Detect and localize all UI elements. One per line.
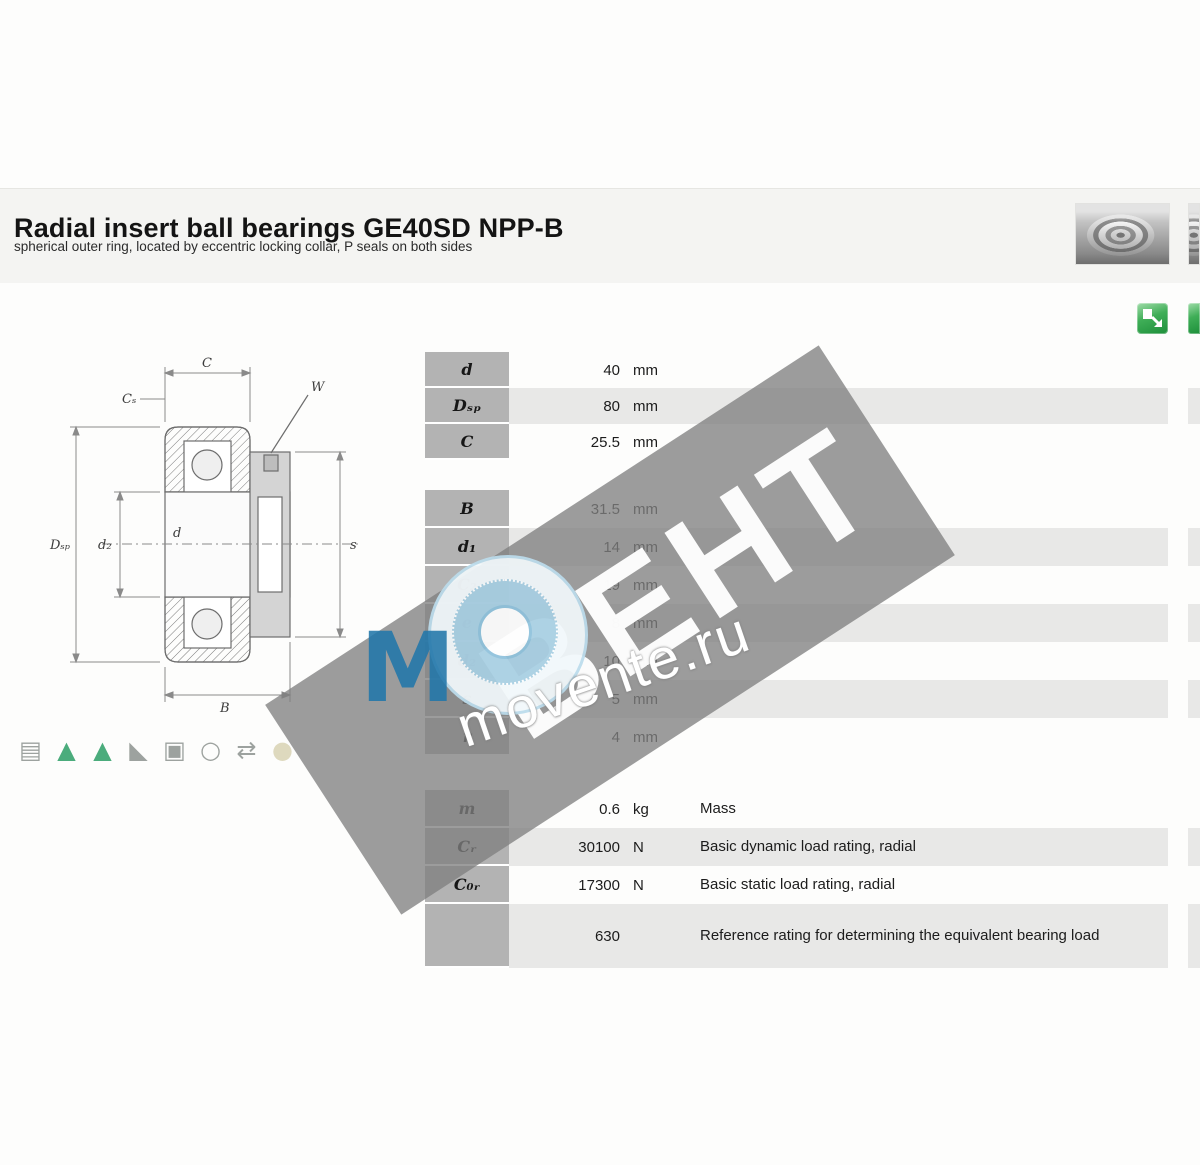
- spec-symbol: [425, 904, 509, 968]
- watermark-m-logo: M: [360, 612, 456, 724]
- spec-row: C₀ᵣ17300NBasic static load rating, radia…: [425, 866, 1168, 904]
- spec-unit: kg: [620, 801, 700, 818]
- spec-value: 630: [509, 928, 620, 945]
- spec-description: Basic static load rating, radial: [700, 873, 1130, 896]
- spec-unit: mm: [620, 398, 700, 415]
- drawing-label-d2: d₂: [98, 538, 112, 553]
- spec-value: 25.5: [509, 434, 620, 451]
- product-page: Radial insert ball bearings GE40SD NPP-B…: [0, 0, 1200, 1165]
- spec-value: 17300: [509, 877, 620, 894]
- seal-icon: ▣: [160, 732, 189, 768]
- header-band: Radial insert ball bearings GE40SD NPP-B…: [0, 188, 1200, 283]
- drawing-label-dsp: Dₛₚ: [49, 538, 70, 553]
- next-column-stripe: [1188, 904, 1200, 968]
- spec-unit: N: [620, 877, 700, 894]
- spec-description: Basic dynamic load rating, radial: [700, 835, 1130, 858]
- drawing-label-b: B: [219, 701, 230, 716]
- next-column-stripe: [1188, 828, 1200, 866]
- next-column-stripe: [1188, 604, 1200, 642]
- datasheet-icon: ▤: [16, 732, 45, 768]
- watermark-logo-bore: [478, 605, 532, 659]
- spec-description: Reference rating for determining the equ…: [700, 924, 1130, 947]
- drawing-label-d: d: [173, 526, 181, 541]
- cad-arrow-glyph: [1137, 303, 1168, 334]
- spec-value: 40: [509, 362, 620, 379]
- feature-icon-row: ▤▲▲◣▣○⇄●: [16, 726, 316, 774]
- spec-symbol: B: [425, 490, 509, 528]
- page-subtitle: spherical outer ring, located by eccentr…: [14, 239, 472, 254]
- cad-download-icon[interactable]: [1137, 303, 1168, 334]
- spec-value: 30100: [509, 839, 620, 856]
- product-photo-thumbnail[interactable]: [1075, 203, 1170, 265]
- temperature-icon: ○: [196, 732, 225, 768]
- spec-row: Cᵣ30100NBasic dynamic load rating, radia…: [425, 828, 1168, 866]
- spec-value: 80: [509, 398, 620, 415]
- spec-symbol: Dₛₚ: [425, 388, 509, 424]
- next-column-stripe: [1188, 388, 1200, 424]
- next-column-stripe: [1188, 528, 1200, 566]
- spec-symbol: C: [425, 424, 509, 460]
- spec-row: 630Reference rating for determining the …: [425, 904, 1168, 968]
- drawing-label-cs: Cₛ: [122, 392, 136, 407]
- suitability-dynamic-icon: ▲: [88, 732, 117, 768]
- spec-unit: N: [620, 839, 700, 856]
- drawing-label-s: s: [350, 538, 357, 553]
- suitability-static-icon: ▲: [52, 732, 81, 768]
- spec-description: Mass: [700, 797, 1130, 820]
- next-column-stripe: [1188, 680, 1200, 718]
- drawing-label-c: C: [202, 356, 212, 371]
- spec-unit: mm: [620, 362, 700, 379]
- drawing-label-w: W: [311, 380, 326, 395]
- misalignment-icon: ◣: [124, 732, 153, 768]
- relubrication-icon: ⇄: [232, 732, 261, 768]
- next-column-sliver: [1188, 0, 1200, 1165]
- spec-symbol: d: [425, 352, 509, 388]
